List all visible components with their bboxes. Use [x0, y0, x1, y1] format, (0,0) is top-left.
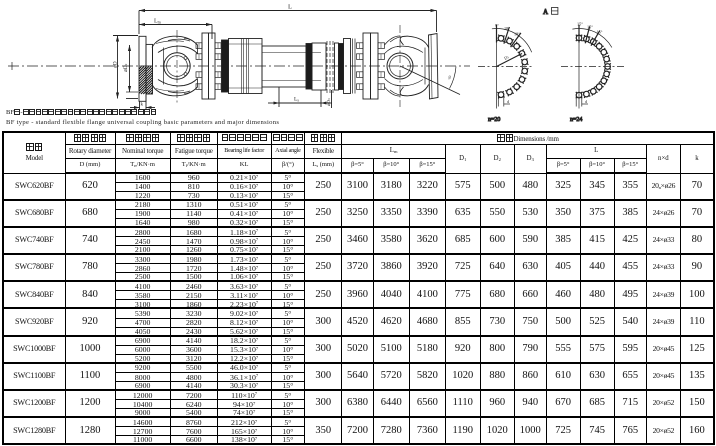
- svg-text:⌀D2: ⌀D2: [124, 63, 129, 72]
- svg-text:9°: 9°: [495, 23, 499, 28]
- svg-text:d: d: [507, 99, 510, 104]
- svg-text:18°: 18°: [504, 26, 510, 31]
- svg-text:15°: 15°: [597, 30, 603, 35]
- svg-text:18°: 18°: [514, 32, 520, 37]
- svg-text:k: k: [141, 103, 144, 108]
- svg-text:n=20: n=20: [488, 117, 500, 123]
- svg-text:15°: 15°: [577, 22, 583, 27]
- svg-text:A: A: [543, 8, 548, 16]
- svg-text:Ls: Ls: [294, 97, 299, 103]
- svg-text:⌀D3: ⌀D3: [326, 98, 331, 106]
- svg-text:Lm: Lm: [154, 19, 162, 25]
- svg-text:L: L: [288, 4, 292, 11]
- svg-text:n=24: n=24: [570, 117, 582, 123]
- svg-text:15°: 15°: [587, 25, 593, 30]
- svg-text:⌀D: ⌀D: [114, 61, 119, 68]
- svg-text:β: β: [449, 75, 452, 80]
- svg-text:d: d: [585, 99, 588, 104]
